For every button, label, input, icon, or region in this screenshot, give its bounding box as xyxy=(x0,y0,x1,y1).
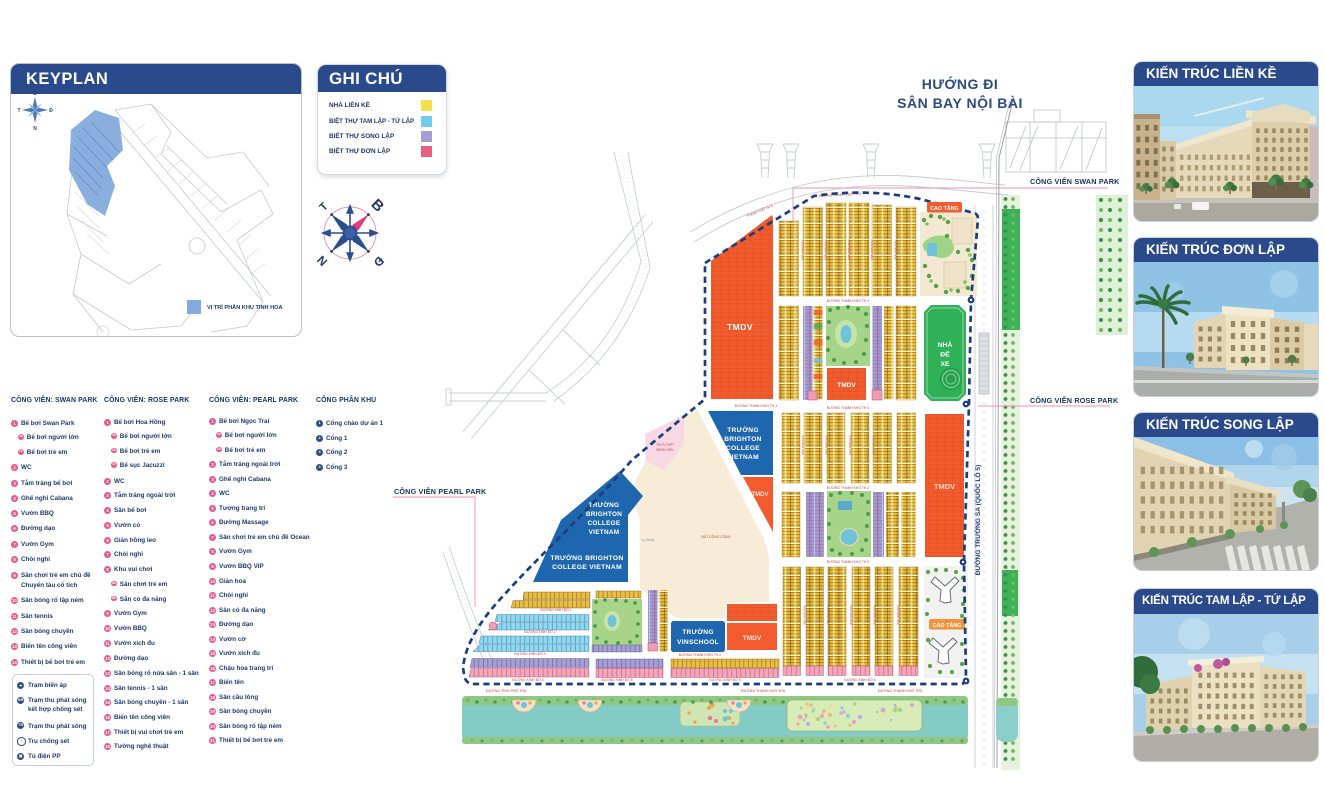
svg-text:T: T xyxy=(17,108,20,114)
svg-text:CÔNG VIÊN ROSE PARK: CÔNG VIÊN ROSE PARK xyxy=(1030,396,1119,405)
svg-text:PHỐ NHÀ HOA: PHỐ NHÀ HOA xyxy=(894,240,899,260)
svg-text:ĐƯỜNG KINH ĐÔ 5: ĐƯỜNG KINH ĐÔ 5 xyxy=(709,677,740,682)
svg-text:PHỐ NHÀ HOA: PHỐ NHÀ HOA xyxy=(849,605,854,625)
svg-text:ĐƯỜNG KINH ĐÔ 5: ĐƯỜNG KINH ĐÔ 5 xyxy=(601,677,632,682)
svg-text:VINSCHOOL: VINSCHOOL xyxy=(677,639,719,646)
svg-text:PHỐ NHÀ HOA: PHỐ NHÀ HOA xyxy=(873,605,878,625)
svg-text:PHỐ NHÀ HOA: PHỐ NHÀ HOA xyxy=(896,605,901,625)
svg-text:ĐƯỜNG KINH ĐÔ 6: ĐƯỜNG KINH ĐÔ 6 xyxy=(844,677,875,682)
svg-text:PHỐ NHÀ HOA: PHỐ NHÀ HOA xyxy=(825,435,830,455)
svg-text:ĐƯỜNG THANH KHỐ TH 2: ĐƯỜNG THANH KHỐ TH 2 xyxy=(679,652,722,657)
svg-text:PHỐ NHÀ HOA: PHỐ NHÀ HOA xyxy=(870,240,875,260)
svg-text:PHỐ NHÀ HOA: PHỐ NHÀ HOA xyxy=(848,435,853,455)
svg-text:ĐƯỜNG KINH ĐÔ 3: ĐƯỜNG KINH ĐÔ 3 xyxy=(514,651,545,656)
svg-text:TRƯỜNG: TRƯỜNG xyxy=(682,627,714,636)
svg-text:COLLEGE: COLLEGE xyxy=(588,520,621,527)
svg-text:COLLEGE: COLLEGE xyxy=(726,445,760,452)
svg-text:ĐƯỜNG THANH KHỐ TH 2: ĐƯỜNG THANH KHỐ TH 2 xyxy=(827,559,870,564)
svg-text:CÔNG VIÊN SWAN PARK: CÔNG VIÊN SWAN PARK xyxy=(1030,177,1120,186)
svg-text:ĐƯỜNG THANH KHỐ TH 2: ĐƯỜNG THANH KHỐ TH 2 xyxy=(827,485,870,490)
svg-text:ĐƯỜNG THANH KHỐ TH 4: ĐƯỜNG THANH KHỐ TH 4 xyxy=(827,298,870,303)
svg-text:ĐƯỜNG THANH KHỐ TH 3: ĐƯỜNG THANH KHỐ TH 3 xyxy=(827,405,870,410)
svg-text:TRƯỜNG: TRƯỜNG xyxy=(727,425,759,434)
svg-text:VIETNAM: VIETNAM xyxy=(727,454,759,461)
svg-text:XE: XE xyxy=(940,361,950,368)
svg-text:BỆNH VIỆN: BỆNH VIỆN xyxy=(656,447,674,452)
svg-text:ĐƯỜNG THANH KHỐ TH5: ĐƯỜNG THANH KHỐ TH5 xyxy=(741,688,785,693)
svg-text:VIETNAM: VIETNAM xyxy=(589,529,620,536)
svg-text:PHỐ NHÀ HOA: PHỐ NHÀ HOA xyxy=(801,240,806,260)
svg-text:TMDV: TMDV xyxy=(752,492,769,498)
svg-text:ĐƯỜNG KINH ĐÔ 4: ĐƯỜNG KINH ĐÔ 4 xyxy=(512,677,543,682)
svg-text:TMDV: TMDV xyxy=(743,635,762,642)
svg-text:ĐỂ: ĐỂ xyxy=(940,350,950,359)
svg-text:CAO TẦNG: CAO TẦNG xyxy=(933,622,962,629)
svg-text:COLLEGE VIETNAM: COLLEGE VIETNAM xyxy=(552,564,622,571)
svg-text:ĐƯỜNG THANH KHỐ TH 3: ĐƯỜNG THANH KHỐ TH 3 xyxy=(735,403,778,408)
svg-text:BRIGHTON: BRIGHTON xyxy=(724,436,761,443)
svg-text:NHÀ: NHÀ xyxy=(938,340,953,349)
svg-text:N: N xyxy=(314,253,330,269)
svg-text:T: T xyxy=(317,200,330,213)
svg-text:TRƯỜNG BRIGHTON: TRƯỜNG BRIGHTON xyxy=(550,553,623,562)
svg-text:ĐƯỜNG TÌNH PHỐ TH5: ĐƯỜNG TÌNH PHỐ TH5 xyxy=(486,688,526,693)
svg-text:PHỐ NHÀ HOA: PHỐ NHÀ HOA xyxy=(872,435,877,455)
svg-text:PHỐ NHÀ HOA: PHỐ NHÀ HOA xyxy=(824,240,829,260)
svg-text:TMDV: TMDV xyxy=(837,382,856,389)
svg-text:ĐƯỜNG THANH KHỐ TH5: ĐƯỜNG THANH KHỐ TH5 xyxy=(878,688,922,693)
svg-text:PHỐ NHÀ HOA: PHỐ NHÀ HOA xyxy=(826,605,831,625)
svg-text:Lỵ Đồng: Lỵ Đồng xyxy=(642,538,655,542)
svg-text:PHỐ NHÀ HOA: PHỐ NHÀ HOA xyxy=(801,435,806,455)
svg-text:PHỐ NHÀ HOA: PHỐ NHÀ HOA xyxy=(803,605,808,625)
svg-text:TMDV: TMDV xyxy=(727,322,753,332)
svg-text:BRIGHTON: BRIGHTON xyxy=(586,511,622,518)
svg-text:TMDV: TMDV xyxy=(934,482,955,491)
svg-text:VỊ TRÍ PHÂN KHU TINH HOA: VỊ TRÍ PHÂN KHU TINH HOA xyxy=(207,303,283,311)
svg-text:ĐƯỜNG TRƯỜNG SA (QUỐC LỘ 5): ĐƯỜNG TRƯỜNG SA (QUỐC LỘ 5) xyxy=(972,465,982,576)
svg-text:THANH KHỐ TH 5: THANH KHỐ TH 5 xyxy=(745,203,773,218)
svg-text:ĐƯỜNG KINH ĐÔ 2: ĐƯỜNG KINH ĐÔ 2 xyxy=(524,629,555,634)
svg-text:N: N xyxy=(33,126,37,132)
svg-text:B: B xyxy=(33,94,37,97)
svg-text:PHỐ NHÀ HOA: PHỐ NHÀ HOA xyxy=(847,240,852,260)
svg-text:ĐẤT CÔNG CỘNG: ĐẤT CÔNG CỘNG xyxy=(702,534,731,539)
svg-text:ĐƯỜNG KINH ĐÔ 1: ĐƯỜNG KINH ĐÔ 1 xyxy=(540,607,571,612)
svg-text:CAO TẦNG: CAO TẦNG xyxy=(930,205,959,212)
svg-text:Đ: Đ xyxy=(49,108,53,114)
svg-text:THCS-THPT: THCS-THPT xyxy=(656,443,674,447)
